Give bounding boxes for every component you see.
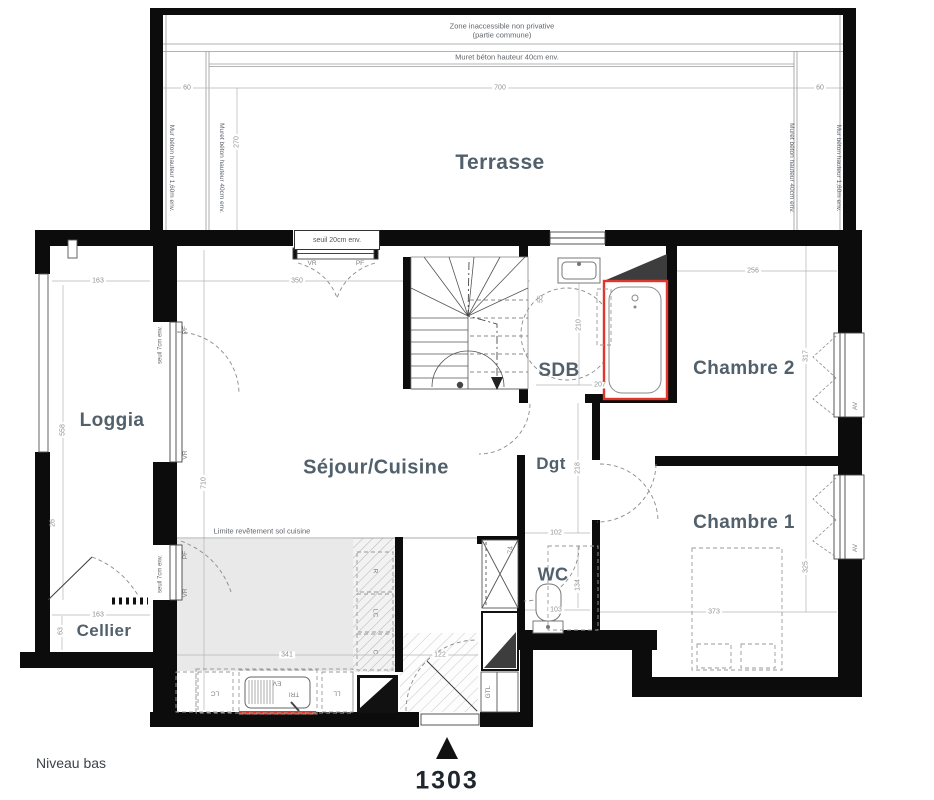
dim-cellier-height: 63 [58,625,65,637]
dim-loggia-width: 163 [90,278,106,285]
room-label-sejour-cuisine: Séjour/Cuisine [303,457,449,480]
window-casement-swings [813,336,836,557]
dim-terrace-270: 270 [234,134,241,150]
code-cuisson: C [371,650,378,655]
code-pf-cellier: PF [183,551,190,559]
room-label-cellier: Cellier [77,621,132,641]
dim-chambre2-width: 256 [745,268,761,275]
seuil-loggia-label: seuil 7cm env. [157,326,165,364]
code-lc-colonne: LC [371,609,378,617]
code-gtl: GTL [486,686,493,699]
room-label-chambre2: Chambre 2 [693,358,795,380]
terrace-lines [163,14,843,230]
dim-chambre2-height: 317 [803,348,810,364]
mur-right-label: Mur béton hauteur 1,60m env. [834,125,842,212]
dim-chambre1-width: 373 [706,609,722,616]
room-label-chambre1: Chambre 1 [693,512,795,534]
code-pf-entree: PF [356,261,364,268]
unit-number: 1303 [415,767,479,796]
dim-sdb-height: 210 [576,317,583,333]
dim-sdb-55: 55 [538,293,545,305]
zone-inaccessible-line1: Zone inaccessible non privative [450,21,555,30]
code-tri: TRI [289,690,299,697]
dim-sdb-width: 207 [592,382,608,389]
code-evier: EV [273,679,282,686]
dim-dgt-width: 102 [548,530,564,537]
code-pf-loggia: PF [183,326,190,334]
code-lave-linge: LL [333,689,340,696]
dim-entry-350: 350 [289,278,305,285]
code-vr-entree: VR [307,261,316,268]
code-vr-loggia: VR [183,450,190,459]
washbasin [558,258,600,283]
dim-wc-width: 103 [548,607,564,614]
code-refrigerateur: R [371,569,378,574]
dim-wc-height: 134 [575,577,582,593]
muret-left-label: Muret béton hauteur 40cm env. [217,123,225,213]
dim-loggia-wall: 26 [50,517,57,529]
dim-terrace-width: 700 [492,85,508,92]
room-label-dgt: Dgt [536,454,566,474]
seuil-entree-label: seuil 20cm env. [294,230,380,250]
plan-drawing [0,0,934,800]
dim-chambre1-height: 325 [803,559,810,575]
code-av-chambre1: AV [853,544,860,552]
room-label-loggia: Loggia [80,410,145,432]
room-label-sdb: SDB [538,360,579,382]
level-label: Niveau bas [36,755,106,771]
room-label-terrasse: Terrasse [455,151,544,175]
room-label-wc: WC [538,565,569,586]
dim-sejour-height: 710 [201,475,208,491]
dim-entry-width: 122 [432,652,448,659]
dim-shaft: 74 [508,544,515,556]
seuil-cellier-label: seuil 7cm env. [157,555,165,593]
zone-inaccessible-line2: (partie commune) [473,30,532,39]
muret-right-label: Muret béton hauteur 40cm env. [787,123,795,213]
muret-top-label: Muret béton hauteur 40cm env. [455,52,559,61]
mur-left-label: Mur béton hauteur 1,60m env. [167,125,175,212]
dim-terrace-60-left: 60 [181,85,193,92]
staircase [411,257,528,390]
kitchen-floor [176,538,478,712]
entrance-marker-icon [436,737,458,759]
limite-cuisine-label: Limite revêtement sol cuisine [214,526,311,535]
floor-plan: seuil 20cm env. Zone inaccessible non pr… [0,0,934,800]
dim-cellier-width: 163 [90,612,106,619]
dim-loggia-height: 558 [60,422,67,438]
bathtub [604,281,667,399]
code-av-chambre2: AV [853,402,860,410]
dim-terrace-60-right: 60 [814,85,826,92]
code-lc-rangee: LC [211,689,219,696]
dim-dgt-height: 218 [575,460,582,476]
code-vr-cellier: VR [183,588,190,597]
dim-kitchen-width: 341 [279,652,295,659]
